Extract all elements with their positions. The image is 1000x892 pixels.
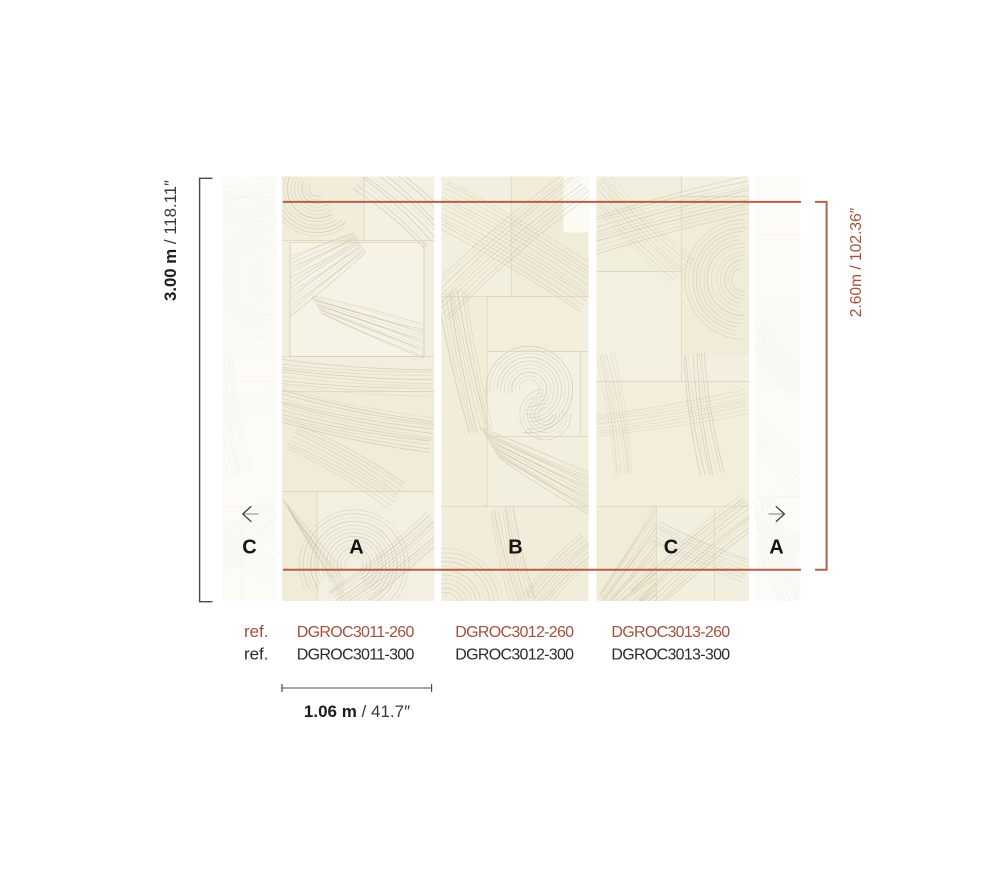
svg-text:DGROC3011-260: DGROC3011-260	[297, 624, 415, 641]
svg-text:C: C	[664, 537, 678, 559]
svg-text:3.00 m / 118.11″: 3.00 m / 118.11″	[160, 180, 179, 301]
svg-text:DGROC3013-260: DGROC3013-260	[611, 624, 730, 641]
svg-text:DGROC3012-300: DGROC3012-300	[455, 647, 574, 664]
svg-text:A: A	[349, 537, 363, 559]
svg-text:DGROC3011-300: DGROC3011-300	[297, 647, 415, 664]
svg-text:1.06 m / 41.7″: 1.06 m / 41.7″	[304, 702, 410, 721]
svg-text:DGROC3012-260: DGROC3012-260	[455, 624, 574, 641]
svg-text:DGROC3013-300: DGROC3013-300	[611, 647, 730, 664]
svg-text:ref.: ref.	[244, 622, 269, 641]
svg-text:ref.: ref.	[244, 645, 269, 664]
svg-text:2.60m / 102.36″: 2.60m / 102.36″	[848, 207, 865, 317]
svg-text:C: C	[242, 537, 256, 559]
svg-text:B: B	[508, 537, 522, 559]
svg-text:A: A	[769, 537, 783, 559]
